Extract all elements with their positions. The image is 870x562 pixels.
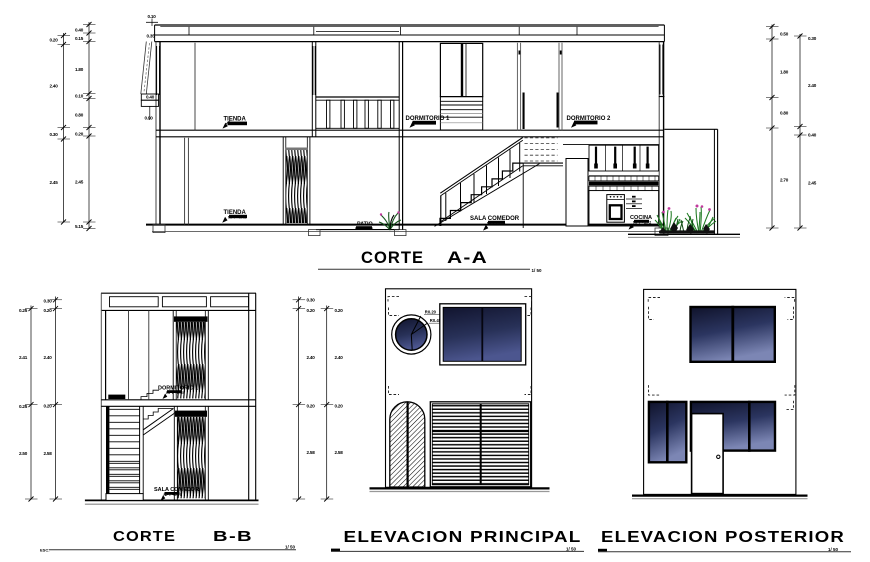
svg-text:0.80: 0.80 [780,111,789,116]
svg-text:0.30: 0.30 [808,36,817,41]
svg-text:B-B: B-B [213,529,253,545]
svg-text:2.45: 2.45 [808,181,817,186]
svg-text:ELEVACION PRINCIPAL: ELEVACION PRINCIPAL [344,529,582,546]
svg-text:2.58: 2.58 [307,450,316,455]
svg-text:R0.20: R0.20 [425,310,437,315]
svg-text:1/ 50: 1/ 50 [532,268,543,273]
svg-text:0.80: 0.80 [75,113,84,118]
svg-text:2.45: 2.45 [75,180,84,185]
svg-text:0.20: 0.20 [335,404,344,409]
svg-text:0.30: 0.30 [44,299,53,304]
svg-text:1/ 50: 1/ 50 [285,544,296,549]
svg-text:A-A: A-A [447,249,488,267]
svg-text:2.40: 2.40 [307,355,316,360]
svg-text:0.40: 0.40 [75,28,84,33]
svg-text:0.20: 0.20 [44,404,53,409]
svg-text:CORTE: CORTE [361,249,424,267]
svg-text:2.40: 2.40 [44,355,53,360]
svg-text:0.25: 0.25 [19,308,28,313]
svg-text:0.20: 0.20 [307,404,316,409]
svg-text:0.30: 0.30 [307,298,316,303]
svg-text:0.50: 0.50 [780,32,789,37]
svg-text:ESC:: ESC: [40,548,50,553]
svg-text:2.41: 2.41 [19,355,28,360]
svg-text:0.40: 0.40 [808,133,817,138]
svg-text:2.70: 2.70 [780,178,789,183]
svg-text:5.15: 5.15 [75,224,84,229]
svg-text:0.20: 0.20 [50,38,59,43]
svg-text:2.45: 2.45 [50,180,59,185]
svg-text:0.20: 0.20 [335,308,344,313]
svg-text:1.80: 1.80 [75,67,84,72]
svg-text:1.80: 1.80 [780,70,789,75]
svg-text:1/ 50: 1/ 50 [828,547,839,552]
svg-text:2.58: 2.58 [335,450,344,455]
svg-text:2.58: 2.58 [44,451,53,456]
svg-text:1/ 50: 1/ 50 [566,546,577,551]
svg-text:2.40: 2.40 [50,84,59,89]
svg-text:0.90: 0.90 [145,116,154,121]
svg-text:0.20: 0.20 [44,308,53,313]
svg-text:CORTE: CORTE [113,529,176,545]
svg-text:0.30: 0.30 [50,132,59,137]
svg-text:0.40: 0.40 [146,95,155,100]
svg-text:0.10: 0.10 [75,94,84,99]
svg-text:0.20: 0.20 [307,308,316,313]
svg-text:ELEVACION POSTERIOR: ELEVACION POSTERIOR [601,529,845,546]
svg-text:TIENDA: TIENDA [224,116,247,122]
svg-text:0.20: 0.20 [75,132,84,137]
svg-text:0.10: 0.10 [148,14,157,19]
svg-text:0.15: 0.15 [75,36,84,41]
svg-text:0.35: 0.35 [147,34,156,39]
svg-text:2.50: 2.50 [19,451,28,456]
svg-text:0.25: 0.25 [19,404,28,409]
svg-text:2.40: 2.40 [808,83,817,88]
svg-text:2.40: 2.40 [335,355,344,360]
